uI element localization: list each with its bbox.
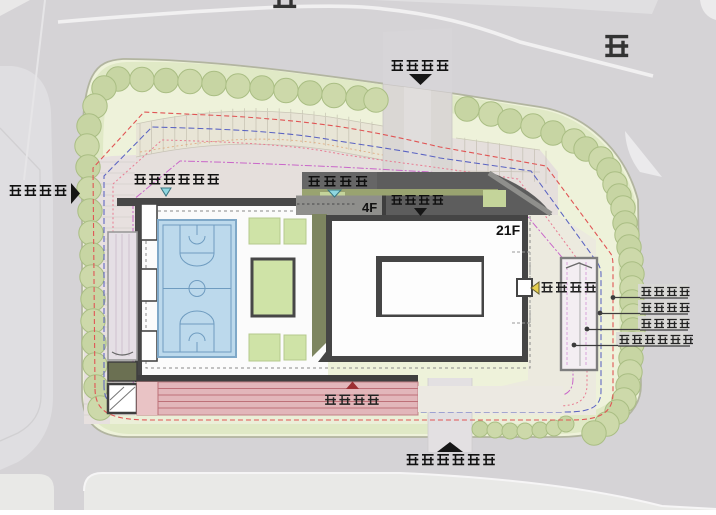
svg-text:4F: 4F [362, 200, 377, 215]
svg-text:21F: 21F [496, 222, 521, 238]
